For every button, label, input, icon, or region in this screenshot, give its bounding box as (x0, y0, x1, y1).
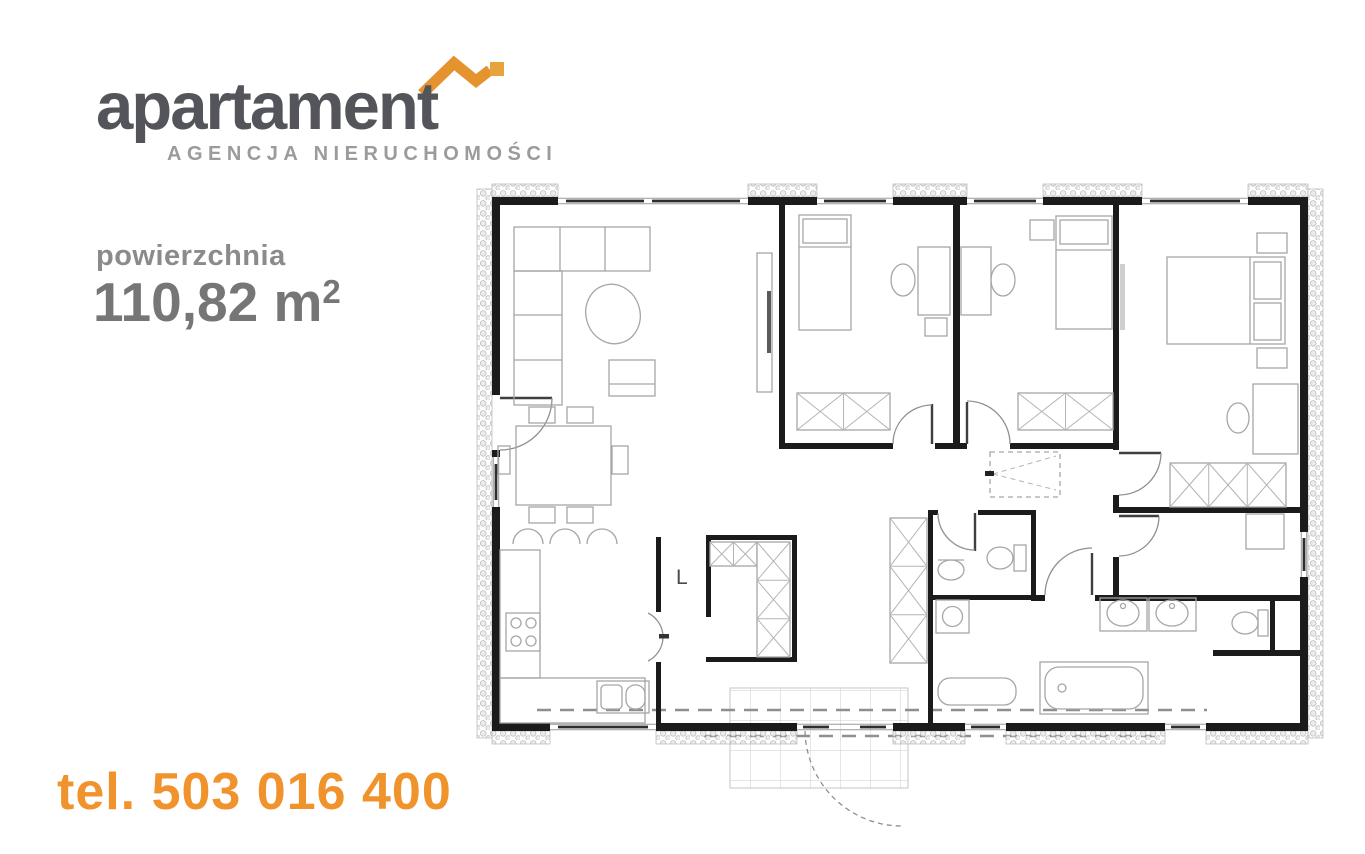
dining-table (498, 407, 628, 523)
coffee-table (578, 277, 648, 351)
bedroom2-door (967, 401, 1010, 444)
bedroom2-desk (961, 220, 1054, 315)
bedroom1-wardrobe (797, 393, 890, 430)
bedroom3-door (1119, 453, 1161, 495)
hall-closet (890, 518, 927, 663)
bedroom2-wardrobe (1018, 393, 1113, 430)
kitchen-sink (597, 681, 649, 713)
entrance-door (500, 398, 552, 450)
bar-stools (513, 529, 617, 544)
hall-planned-wardrobe (985, 452, 1060, 497)
kitchen-counter (500, 550, 649, 723)
dressing-room-door (1119, 516, 1159, 556)
kitchen-swing-door (648, 613, 669, 661)
corner-sofa (514, 227, 650, 405)
pouf-table (609, 360, 655, 396)
wc-door (938, 513, 975, 551)
bathroom-door (1045, 548, 1092, 595)
bedroom3-desk (1227, 384, 1298, 454)
bedroom1-door (893, 404, 932, 444)
wc-basin (938, 560, 964, 580)
bedroom3-bed (1167, 233, 1287, 368)
bedroom3-wardrobe (1170, 463, 1286, 507)
page-canvas: apartament AGENCJA NIERUCHOMOŚCI powierz… (0, 0, 1365, 854)
bathtub (1040, 662, 1148, 714)
pantry-cabinets (710, 542, 790, 657)
washing-machine (936, 600, 969, 633)
double-washbasin (1100, 598, 1196, 631)
bathroom-toilet (1232, 610, 1268, 636)
bedroom1-desk (891, 247, 950, 336)
laundry-bench (938, 678, 1016, 705)
floor-plan: L (0, 0, 1365, 854)
stove (506, 613, 540, 651)
fridge-label: L (676, 566, 688, 589)
tv-unit (757, 253, 772, 392)
dresser (1246, 514, 1284, 549)
bedroom1-bed (799, 215, 851, 330)
bedroom2-bed (1056, 216, 1112, 329)
wc-toilet (987, 545, 1026, 571)
radiator (1120, 264, 1125, 330)
